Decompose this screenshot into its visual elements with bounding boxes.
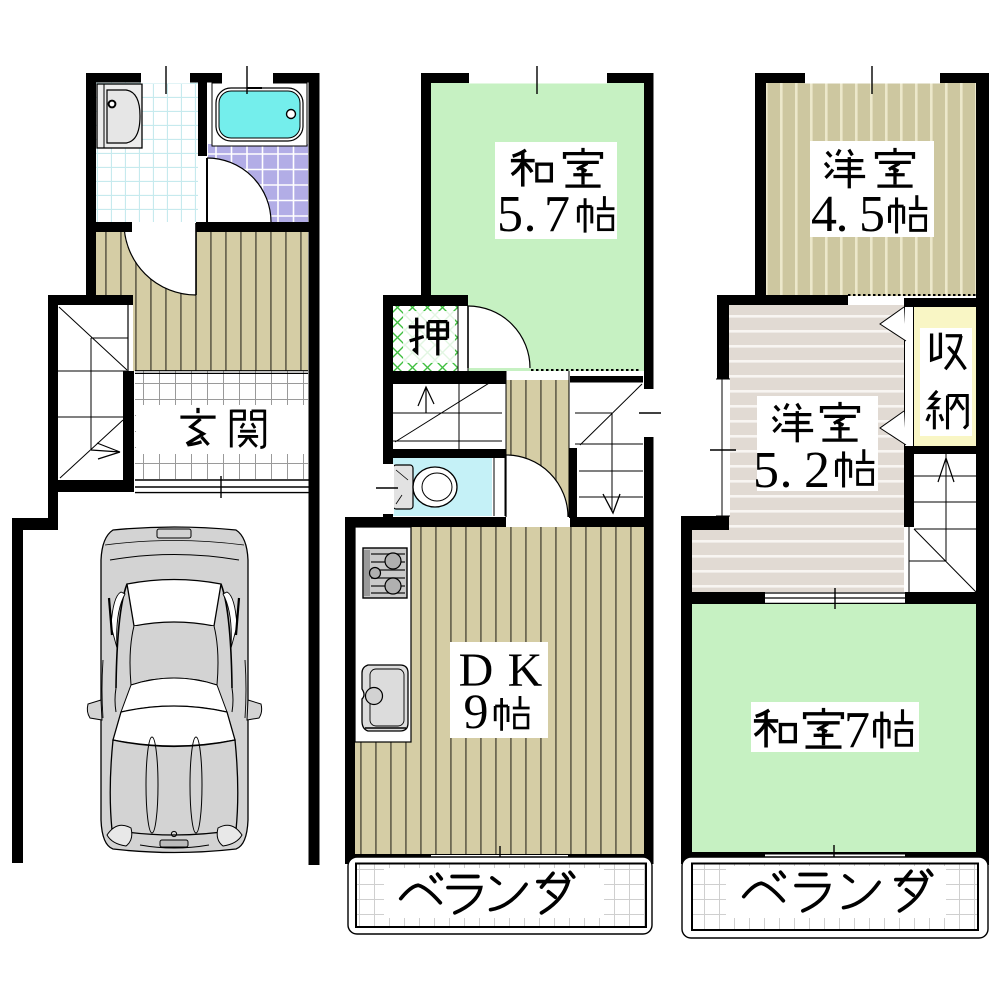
svg-text:.: . xyxy=(524,186,537,243)
svg-text:.: . xyxy=(836,186,849,243)
svg-text:7: 7 xyxy=(844,702,870,759)
svg-text:7: 7 xyxy=(544,186,570,243)
svg-text:2: 2 xyxy=(804,442,830,499)
svg-text:5: 5 xyxy=(753,442,779,499)
svg-text:K: K xyxy=(508,644,543,697)
svg-text:5: 5 xyxy=(859,186,885,243)
svg-text:.: . xyxy=(780,442,793,499)
svg-text:9: 9 xyxy=(464,683,489,739)
svg-text:4: 4 xyxy=(811,186,837,243)
svg-text:5: 5 xyxy=(497,186,523,243)
